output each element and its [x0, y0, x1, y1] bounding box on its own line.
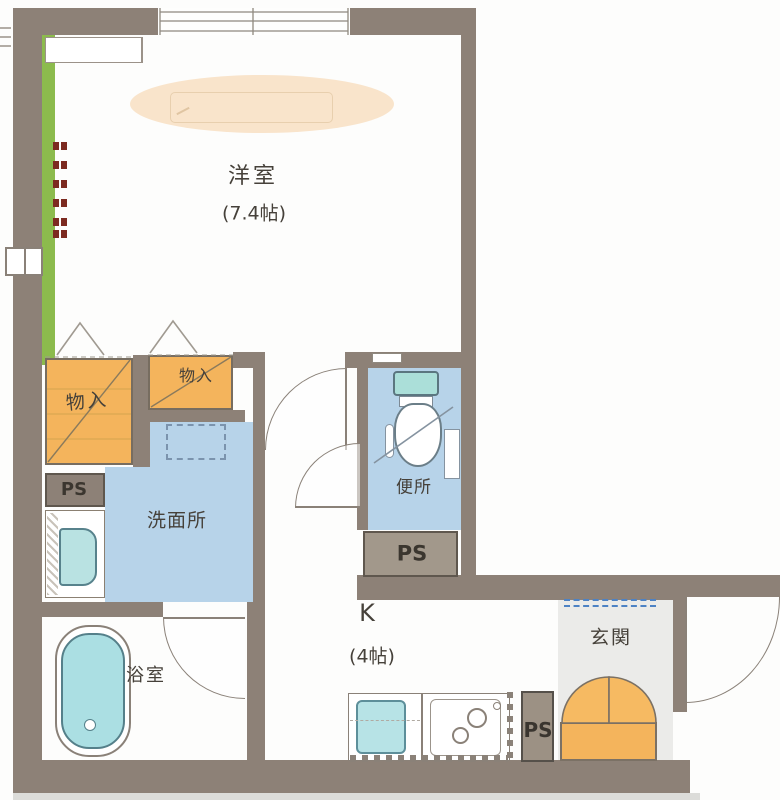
washroom-floor-nook [105, 467, 148, 602]
ps3-serration [507, 692, 513, 762]
ceiling-light-frame [170, 92, 333, 123]
bottom-shadow [13, 793, 700, 800]
wall-left [13, 8, 42, 760]
toilet-vent-notch [372, 353, 402, 363]
exterior-pipe-divider [24, 249, 26, 274]
wall-washroom-right [253, 368, 265, 602]
stove-burner-3 [493, 702, 501, 710]
wall-top-right [348, 8, 476, 35]
wall-closet2-bottom [148, 410, 245, 422]
window-north [158, 8, 350, 35]
storage2-label: 物入 [179, 368, 213, 384]
kitchen-stove-top [430, 699, 501, 756]
floor-plan: 洋室 (7.4帖) 物入 物入 PS 洗面所 便所 PS 浴室 K (4帖) P… [0, 0, 780, 800]
exterior-tick-2 [0, 36, 11, 38]
washbasin-hatch [47, 513, 58, 595]
toilet-side-shelf [444, 429, 460, 479]
entrance-step-dashes [564, 599, 656, 607]
toilet-bowl [394, 403, 442, 467]
toilet-label: 便所 [396, 480, 432, 497]
pipe-space3-label: PS [523, 720, 552, 740]
kitchen-size-label: (4帖) [349, 648, 395, 667]
stove-burner-2 [452, 727, 469, 744]
bathroom-door-swing [163, 617, 245, 699]
washbasin-bowl [59, 528, 97, 586]
washing-machine-pan [166, 424, 226, 460]
stove-burner-1 [467, 708, 487, 728]
wall-bath-top [42, 602, 163, 617]
western-room-door-swing [265, 368, 347, 450]
north-shelf [45, 37, 143, 63]
folding-door-symbols [45, 321, 233, 357]
hall-door-swing [295, 443, 360, 508]
exterior-tick-3 [0, 45, 11, 47]
shoe-cabinet-body [560, 722, 657, 761]
washroom-label: 洗面所 [147, 512, 207, 531]
bathroom-label: 浴室 [126, 667, 166, 685]
kitchen-label: K [359, 601, 375, 625]
western-room-label: 洋室 [228, 166, 278, 188]
kitchen-counter-dash [350, 720, 420, 721]
pipe-space2-label: PS [397, 544, 428, 565]
toilet-tank [393, 371, 439, 396]
storage1-label: 物入 [65, 390, 109, 413]
western-room-size-label: (7.4帖) [222, 205, 286, 224]
wall-bottom [13, 760, 690, 793]
bathtub-inner [61, 633, 125, 749]
entrance-label: 玄関 [590, 629, 632, 648]
bathtub-drain [84, 719, 96, 731]
kitchen-edge-serration [350, 755, 508, 762]
entrance-door-swing [685, 597, 780, 703]
wall-right [461, 35, 476, 575]
wall-toilet-top [345, 352, 461, 368]
north-shelf-divider [141, 37, 143, 63]
wall-corridor-top [233, 352, 265, 368]
pipe-space1-label: PS [61, 481, 87, 499]
wall-bath-right [247, 602, 265, 760]
exterior-tick-1 [0, 27, 11, 29]
kitchen-sink [356, 700, 406, 754]
toilet-armrest [385, 424, 394, 458]
